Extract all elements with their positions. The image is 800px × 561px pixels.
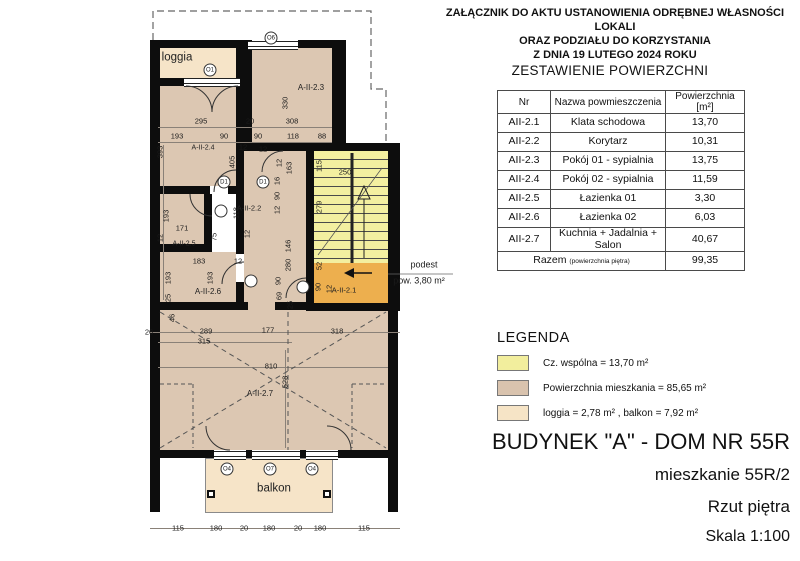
dimension-label: 193	[162, 210, 170, 223]
floor-plan: loggiabalkonA-II-2.3A-II-2.4A-II-2.2A-II…	[142, 0, 462, 561]
table-row: AII-2.6Łazienka 026,03	[498, 209, 745, 228]
legend-item: Cz. wspólna = 13,70 m²	[497, 355, 757, 371]
table-cell: 13,75	[666, 152, 745, 171]
table-row: AII-2.7Kuchnia + Jadalnia + Salon40,67	[498, 228, 745, 252]
legend-label: Cz. wspólna = 13,70 m²	[543, 358, 648, 369]
column-header-name: Nazwa powmieszczenia	[551, 91, 666, 114]
legend-swatch	[497, 380, 529, 396]
room-label-a-ii-2-1: A-II-2.1	[332, 286, 357, 294]
legend: LEGENDA Cz. wspólna = 13,70 m²Powierzchn…	[497, 330, 757, 430]
dimension-label: 115	[358, 524, 370, 532]
dimension-label: 12	[273, 206, 281, 214]
table-cell: AII-2.6	[498, 209, 551, 228]
dimension-label: 12	[259, 145, 267, 153]
building-title: BUDYNEK "A" - DOM NR 55R	[492, 425, 790, 459]
legend-label: loggia = 2,78 m² , balkon = 7,92 m²	[543, 408, 698, 419]
dimension-label: 180	[210, 524, 223, 532]
dimension-label: 118	[232, 207, 240, 219]
total-sublabel: (powierzchnia piętra)	[569, 258, 629, 265]
legend-item: loggia = 2,78 m² , balkon = 7,92 m²	[497, 405, 757, 421]
dimension-label: 12	[239, 143, 247, 151]
dimension-label: 280	[284, 259, 292, 272]
table-row: AII-2.1Klata schodowa13,70	[498, 114, 745, 133]
podest-note: podest	[410, 261, 437, 270]
dimension-label: 75	[210, 233, 218, 241]
table-cell: 11,59	[666, 171, 745, 190]
total-label-cell: Razem (powierzchnia piętra)	[498, 252, 666, 271]
dimension-label: 180	[314, 524, 327, 532]
table-cell: Pokój 01 - sypialnia	[551, 152, 666, 171]
dimension-label: 193	[206, 272, 214, 285]
door-tag-d1: D1	[218, 176, 231, 189]
dimension-label: 308	[286, 117, 299, 125]
area-table: Nr Nazwa powmieszczenia Powierzchnia [m²…	[497, 90, 745, 271]
window-tag-o4: O4	[306, 463, 319, 476]
table-cell: Kuchnia + Jadalnia + Salon	[551, 228, 666, 252]
dimension-label: 25	[286, 301, 294, 309]
dimension-label: 180	[263, 524, 276, 532]
table-cell: AII-2.4	[498, 171, 551, 190]
podest-area-note: pow. 3,80 m²	[393, 277, 445, 286]
table-row: AII-2.4Pokój 02 - sypialnia11,59	[498, 171, 745, 190]
room-label-a-ii-2-7: A-II-2.7	[247, 390, 273, 398]
dimension-label: 12	[275, 159, 283, 167]
dimension-label: 20	[294, 524, 302, 532]
dimension-label: 90	[254, 132, 262, 140]
room-label-a-ii-2-3: A-II-2.3	[298, 84, 324, 92]
dimension-label: 810	[265, 362, 278, 370]
table-cell: 40,67	[666, 228, 745, 252]
dimension-label: 12	[156, 234, 164, 242]
table-cell: 13,70	[666, 114, 745, 133]
table-row: AII-2.3Pokój 01 - sypialnia13,75	[498, 152, 745, 171]
legend-label: Powierzchnia mieszkania = 85,65 m²	[543, 383, 706, 394]
dimension-label: 183	[193, 257, 206, 265]
table-header-row: Nr Nazwa powmieszczenia Powierzchnia [m²…	[498, 91, 745, 114]
table-total-row: Razem (powierzchnia piętra) 99,35	[498, 252, 745, 271]
legend-swatch	[497, 355, 529, 371]
scale-title: Skala 1:100	[492, 522, 790, 552]
dimension-label: 315	[198, 337, 211, 345]
table-cell: Pokój 02 - sypialnia	[551, 171, 666, 190]
table-cell: 10,31	[666, 133, 745, 152]
dimension-label: 528	[281, 376, 289, 389]
dimension-label: 393	[156, 146, 164, 159]
window-tag-o4: O4	[221, 463, 234, 476]
door-tag	[215, 205, 228, 218]
room-label-a-ii-2-6: A-II-2.6	[195, 288, 221, 296]
total-value: 99,35	[666, 252, 745, 271]
dimension-label: 295	[195, 117, 208, 125]
table-cell: AII-2.5	[498, 190, 551, 209]
table-cell: AII-2.2	[498, 133, 551, 152]
dimension-label: 330	[281, 97, 289, 110]
dimension-label: 20	[240, 524, 248, 532]
window-tag-o1: O1	[204, 64, 217, 77]
table-cell: AII-2.7	[498, 228, 551, 252]
dimension-label: 289	[200, 327, 213, 335]
table-cell: Klata schodowa	[551, 114, 666, 133]
room-label-a-ii-2-5: A-II-2.5	[173, 241, 196, 248]
dimension-label: 90	[274, 277, 282, 285]
dimension-label: 115	[315, 160, 323, 172]
door-tag	[245, 275, 258, 288]
room-label-a-ii-2-4: A-II-2.4	[192, 145, 215, 152]
dimension-label: 88	[318, 132, 326, 140]
dimension-label: 46	[168, 314, 176, 322]
column-header-area: Powierzchnia [m²]	[666, 91, 745, 114]
dimension-label: 12	[243, 230, 251, 238]
legend-title: LEGENDA	[497, 330, 757, 346]
dimension-label: 26	[145, 328, 153, 336]
table-title: ZESTAWIENIE POWIERZCHNI	[490, 63, 730, 78]
header-line-1: ZAŁĄCZNIK DO AKTU USTANOWIENIA ODRĘBNEJ …	[430, 6, 800, 34]
dimension-label: 250	[339, 168, 352, 176]
title-block: BUDYNEK "A" - DOM NR 55R mieszkanie 55R/…	[492, 425, 790, 552]
door-tag-d1: D1	[257, 176, 270, 189]
room-label-a-ii-2-2: A-II-2.2	[237, 204, 262, 212]
column-header-nr: Nr	[498, 91, 551, 114]
table-row: AII-2.2Korytarz10,31	[498, 133, 745, 152]
dimension-label: 115	[172, 524, 184, 532]
window-tag-o6: O6	[265, 32, 278, 45]
legend-item: Powierzchnia mieszkania = 85,65 m²	[497, 380, 757, 396]
header-line-3: Z DNIA 19 LUTEGO 2024 ROKU	[430, 48, 800, 62]
door-tag	[297, 281, 310, 294]
plan-annotations: loggiabalkonA-II-2.3A-II-2.4A-II-2.2A-II…	[142, 0, 462, 561]
table-cell: AII-2.1	[498, 114, 551, 133]
room-label-loggia: loggia	[162, 52, 193, 64]
dimension-label: 90	[273, 192, 281, 200]
table-cell: 6,03	[666, 209, 745, 228]
dimension-label: 90	[220, 132, 228, 140]
dimension-label: 20	[246, 117, 254, 125]
dimension-label: 12	[234, 257, 242, 265]
dimension-label: 118	[287, 132, 299, 140]
dimension-label: 193	[171, 132, 184, 140]
dimension-label: 193	[164, 272, 172, 285]
dimension-label: 163	[285, 162, 293, 175]
dimension-label: 25	[164, 294, 172, 302]
window-tag-o7: O7	[264, 463, 277, 476]
table-cell: Łazienka 01	[551, 190, 666, 209]
legend-swatch	[497, 405, 529, 421]
dimension-label: 52	[315, 262, 323, 270]
header-line-2: ORAZ PODZIAŁU DO KORZYSTANIA	[430, 34, 800, 48]
dimension-label: 318	[331, 327, 344, 335]
dimension-label: 146	[284, 240, 292, 253]
dimension-label: 16	[273, 177, 281, 185]
dimension-label: 279	[315, 201, 323, 214]
table-cell: Łazienka 02	[551, 209, 666, 228]
table-row: AII-2.5Łazienka 013,30	[498, 190, 745, 209]
drawing-sheet: loggiabalkonA-II-2.3A-II-2.4A-II-2.2A-II…	[0, 0, 800, 561]
total-label: Razem	[533, 254, 566, 266]
room-label-balkon: balkon	[257, 483, 291, 495]
document-header: ZAŁĄCZNIK DO AKTU USTANOWIENIA ODRĘBNEJ …	[430, 6, 800, 62]
dimension-label: 405	[228, 156, 236, 169]
apartment-title: mieszkanie 55R/2	[492, 459, 790, 491]
plan-type-title: Rzut piętra	[492, 491, 790, 522]
dimension-label: 69	[275, 292, 283, 300]
dimension-label: 171	[176, 224, 189, 232]
dimension-label: 177	[262, 326, 275, 334]
dimension-label: 90	[314, 283, 322, 291]
dimension-label: 12	[325, 285, 333, 293]
table-cell: Korytarz	[551, 133, 666, 152]
table-cell: AII-2.3	[498, 152, 551, 171]
table-cell: 3,30	[666, 190, 745, 209]
